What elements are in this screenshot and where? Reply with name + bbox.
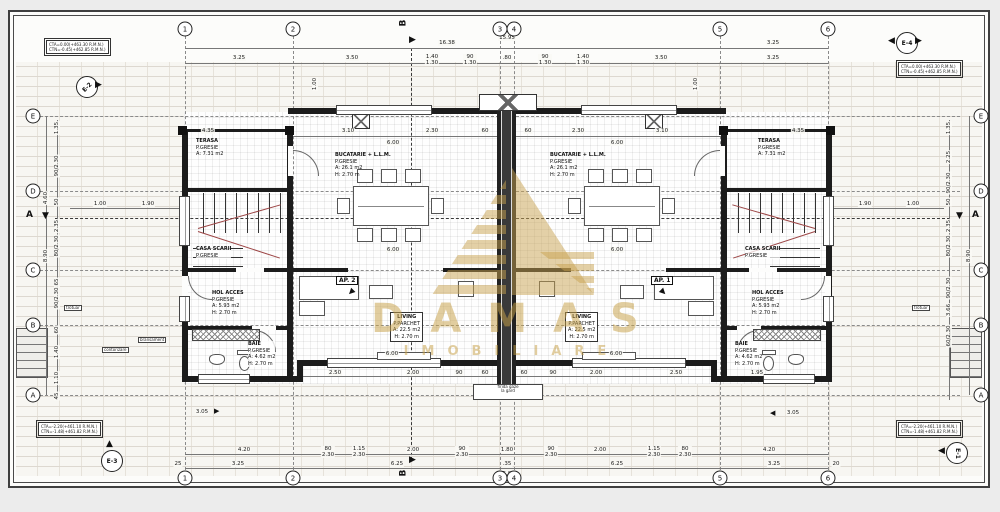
- room-finish: P.GRESIE: [196, 145, 218, 151]
- dimension-label: 60: [520, 370, 529, 376]
- grid-bubble-e-left: E: [26, 109, 41, 124]
- room-area: A: 22.5 m2: [568, 327, 595, 333]
- room-name: BUCATARIE + L.L.M.: [335, 152, 391, 158]
- room-finish: P.GRESIE: [745, 253, 767, 259]
- grid-bubble-2-bottom: 2: [286, 471, 301, 486]
- furniture-chair: [381, 228, 397, 242]
- room-finish: P.GRESIE: [196, 253, 218, 259]
- room-label-terasa-right: TERASA P.GRESIE A: 7.31 m2: [758, 138, 785, 158]
- dimension-label: 50: [946, 198, 952, 207]
- grid-bubble-5-top: 5: [713, 22, 728, 37]
- door-opening: [182, 276, 188, 296]
- room-height: H: 2.70 m: [394, 334, 419, 340]
- grid-bubble-4-bottom: 4: [507, 471, 522, 486]
- room-area: A: 7.31 m2: [758, 151, 785, 157]
- dimension-label: 80 2.30: [678, 446, 692, 458]
- room-name: BUCATARIE + L.L.M.: [550, 152, 606, 158]
- note-line: CTN=-1.48(+461.82 R.M.N.): [901, 429, 958, 434]
- dimension-label: .35: [502, 461, 513, 467]
- grid-bubble-5-bottom: 5: [713, 471, 728, 486]
- grid-bubble-2-top: 2: [286, 22, 301, 37]
- grid-bubble-1-bottom: 1: [178, 471, 193, 486]
- party-wall: [497, 96, 516, 386]
- room-name: TERASA: [758, 138, 780, 144]
- toilet-tank: [762, 350, 776, 355]
- dimension-label: 60: [481, 128, 490, 134]
- wall: [297, 360, 303, 382]
- sink: [788, 354, 804, 365]
- gas-niche-label: firida gaze la gard: [473, 384, 543, 400]
- note-line: CTN=-1.48(+461.82 R.M.N.): [41, 429, 98, 434]
- elevation-marker-label: E-3: [107, 458, 118, 465]
- dimension-label: 2.00: [593, 447, 607, 453]
- dimension-label: 1.90: [141, 201, 155, 207]
- elevation-note-top-right: CTA=0.00(+463.30 R.M.N.) CTN=-0.45(+462.…: [898, 62, 961, 76]
- section-letter-b-top: B: [398, 20, 408, 27]
- room-label-casa-scarii-left: CASA SCARII P.GRESIE: [196, 246, 231, 259]
- dimension-label: 50: [54, 198, 60, 207]
- room-height: H: 2.70 m: [569, 334, 594, 340]
- dimension-label: 60: [54, 326, 60, 335]
- room-name: CASA SCARII: [196, 246, 231, 252]
- apartment-tag-ap1: AP. 1: [651, 276, 673, 285]
- dimension-label: 4.60: [43, 191, 49, 205]
- dimension-label: .80: [502, 55, 513, 61]
- dimension-label: 80 2.30: [321, 446, 335, 458]
- dimension-label: 80/2.30: [54, 234, 60, 257]
- section-letter-b-bottom: B: [398, 470, 408, 477]
- dimension-label: 90/2.30: [54, 154, 60, 177]
- stair-flight: [193, 193, 285, 233]
- furniture-sofa: [299, 301, 325, 316]
- room-name: HOL ACCES: [212, 290, 244, 296]
- room-name: TERASA: [196, 138, 218, 144]
- furniture-chair: [612, 169, 628, 183]
- dimension-label: 1.00: [906, 201, 920, 207]
- room-label-bucatarie-right: BUCATARIE + L.L.M. P.GRESIE A: 26.1 m2 H…: [550, 152, 606, 178]
- grid-bubble-c-left: C: [26, 263, 41, 278]
- sidewalk-label: trotuar: [64, 305, 82, 311]
- wall: [826, 129, 832, 381]
- dimension-line: [516, 136, 721, 137]
- grid-bubble-c-right: C: [974, 263, 989, 278]
- closet-hatch: [753, 329, 821, 341]
- room-height: H: 2.70 m: [550, 172, 575, 178]
- dimension-line: [185, 63, 828, 64]
- room-name: BAIE: [248, 341, 261, 347]
- grid-bubble-d-right: D: [974, 184, 989, 199]
- slope-arrow-icon: ▶: [214, 408, 219, 415]
- wall: [182, 129, 292, 132]
- dimension-label: 2.30: [571, 128, 585, 134]
- dimension-label: 1.00: [312, 77, 318, 91]
- wall: [293, 268, 348, 272]
- dimension-label: 2.35: [54, 219, 60, 233]
- dimension-label: 1.90: [858, 201, 872, 207]
- section-arrow-icon: ▶: [409, 456, 416, 465]
- dimension-label: 1.00: [693, 77, 699, 91]
- dimension-label: 1.80: [500, 447, 514, 453]
- section-arrow-icon: ▶: [409, 36, 416, 45]
- wall: [666, 268, 721, 272]
- dimension-label: 80/2.30: [946, 234, 952, 257]
- column-post: [285, 126, 294, 135]
- slope-label: 3.05: [195, 409, 209, 415]
- room-finish: P.GRESIE: [735, 348, 757, 354]
- dimension-label: 1.40: [54, 345, 60, 359]
- dimension-label: 6.00: [610, 247, 624, 253]
- dimension-label: 4.20: [762, 447, 776, 453]
- stair-flight: [728, 193, 820, 233]
- wall: [711, 360, 717, 382]
- dimension-label: 65: [54, 278, 60, 287]
- dimension-label: 90 2.30: [544, 446, 558, 458]
- elevation-marker-arrow-icon: ◀: [938, 447, 945, 456]
- furniture-dining-table: [353, 186, 429, 226]
- flue-box: [352, 114, 370, 129]
- dimension-label: 25: [174, 461, 183, 467]
- dimension-label: 90/2.30: [946, 276, 952, 299]
- window: [179, 296, 190, 322]
- room-area: A: 5.93 m2: [752, 303, 779, 309]
- dimension-label: 3.10: [341, 128, 355, 134]
- room-label-hol-right: HOL ACCES P.GRESIE A: 5.93 m2 H: 2.70 m: [752, 290, 784, 316]
- room-label-living-right: LIVING P.PARCHET A: 22.5 m2 H: 2.70 m: [565, 312, 598, 342]
- furniture-coffee-table: [369, 285, 393, 299]
- window: [179, 196, 190, 246]
- furniture-chair: [405, 169, 421, 183]
- room-label-casa-scarii-right: CASA SCARII P.GRESIE: [745, 246, 780, 259]
- grid-bubble-6-top: 6: [821, 22, 836, 37]
- dimension-label: 6.00: [610, 140, 624, 146]
- elevation-marker-arrow-icon: ▶: [915, 37, 922, 46]
- elevation-marker-label: E-4: [902, 40, 913, 47]
- wall: [721, 188, 832, 192]
- room-label-baie-right: BAIE P.GRESIE A: 4.62 m2 H: 2.70 m: [735, 341, 762, 367]
- grid-line-2: [293, 36, 294, 470]
- dimension-label: 3.25: [766, 40, 780, 46]
- dimension-label: 1.40 1.30: [425, 54, 439, 66]
- slope-label: 3.05: [786, 410, 800, 416]
- room-label-terasa-left: TERASA P.GRESIE A: 7.31 m2: [196, 138, 223, 158]
- room-height: H: 2.70 m: [335, 172, 360, 178]
- column-post: [178, 126, 187, 135]
- dimension-label: 1.40 1.30: [576, 54, 590, 66]
- furniture-chair: [636, 228, 652, 242]
- room-label-bucatarie-left: BUCATARIE + L.L.M. P.GRESIE A: 26.1 m2 H…: [335, 152, 391, 178]
- grid-bubble-a-left: A: [26, 388, 41, 403]
- dimension-label: 1.00: [93, 201, 107, 207]
- dimension-label: 2.25: [946, 150, 952, 164]
- grid-bubble-6-bottom: 6: [821, 471, 836, 486]
- dimension-label: 6.00: [386, 140, 400, 146]
- service-connection-label: bransament: [138, 337, 166, 343]
- gas-niche-line2: la gard: [501, 388, 515, 393]
- room-name: LIVING: [572, 314, 591, 320]
- room-name: LIVING: [397, 314, 416, 320]
- dimension-label: 90: [549, 370, 558, 376]
- dimension-label: 1.35: [946, 121, 952, 135]
- furniture-coffee-table: [620, 285, 644, 299]
- dimension-label: 90 1.30: [538, 54, 552, 66]
- grid-bubble-d-left: D: [26, 184, 41, 199]
- furniture-chair: [662, 198, 675, 214]
- grid-bubble-3-top: 3: [493, 22, 508, 37]
- wall: [443, 268, 498, 272]
- elevation-marker-e1: E-1: [946, 442, 968, 464]
- furniture-chair: [431, 198, 444, 214]
- dimension-label: 2.00: [406, 370, 420, 376]
- dimension-label: 3.50: [345, 55, 359, 61]
- section-letter-a-right: A: [972, 210, 979, 220]
- elevation-note-bottom-left: CTA=-2.20(+461.10 R.M.N.) CTN=-1.48(+461…: [38, 422, 101, 436]
- sidewalk-label: trotuar: [912, 305, 930, 311]
- room-finish: P.GRESIE: [550, 159, 572, 165]
- furniture-chair: [588, 228, 604, 242]
- section-arrow-icon: ▼: [956, 212, 963, 221]
- room-finish: P.GRESIE: [758, 145, 780, 151]
- dimension-label: 2.00: [406, 447, 420, 453]
- dimension-label: 2.35: [946, 219, 952, 233]
- furniture-chair: [357, 228, 373, 242]
- room-height: H: 2.70 m: [752, 310, 777, 316]
- furniture-dining-table: [584, 186, 660, 226]
- room-area: A: 4.62 m2: [735, 354, 762, 360]
- dimension-label: 1.15 2.30: [647, 446, 661, 458]
- wall: [722, 129, 832, 132]
- wall: [182, 129, 188, 381]
- room-finish: P.PARCHET: [568, 321, 595, 327]
- window: [336, 105, 432, 115]
- section-arrow-icon: ▼: [42, 212, 49, 221]
- furniture-chair: [636, 169, 652, 183]
- toilet: [763, 356, 774, 371]
- elevation-marker-label: E-2: [81, 81, 94, 94]
- room-name: BAIE: [735, 341, 748, 347]
- window: [823, 196, 834, 246]
- room-finish: P.GRESIE: [212, 297, 234, 303]
- elevation-marker-e3: E-3: [101, 450, 123, 472]
- room-height: H: 2.70 m: [735, 361, 760, 367]
- room-area: A: 26.1 m2: [550, 165, 577, 171]
- dimension-label: 6.00: [386, 247, 400, 253]
- dimension-label: 6.25: [610, 461, 624, 467]
- grid-bubble-b-right: B: [974, 318, 989, 333]
- dimension-label: 90/2.30: [54, 286, 60, 309]
- dimension-label: 3.25: [767, 461, 781, 467]
- dimension-label: 6.00: [385, 351, 399, 357]
- room-area: A: 26.1 m2: [335, 165, 362, 171]
- wall: [182, 188, 293, 192]
- grid-bubble-a-right: A: [974, 388, 989, 403]
- dimension-label: 8.90: [966, 249, 972, 263]
- dimension-label: 2.50: [669, 370, 683, 376]
- dimension-label: 3.50: [654, 55, 668, 61]
- window: [763, 374, 815, 384]
- dimension-label: 60: [481, 370, 490, 376]
- elevation-marker-arrow-icon: ▶: [95, 81, 102, 90]
- dimension-line: [832, 208, 944, 209]
- furniture-chair: [337, 198, 350, 214]
- note-line: CTN=-0.45(+462.85 R.M.N.): [49, 47, 106, 52]
- dimension-label: 3.25: [231, 461, 245, 467]
- dimension-label: 6.25: [390, 461, 404, 467]
- dimension-label: 3.25: [766, 55, 780, 61]
- slope-arrow-icon: ◀: [770, 410, 775, 417]
- dimension-label: 90 2.30: [455, 446, 469, 458]
- dimension-label: 4.20: [237, 447, 251, 453]
- flue-box: [645, 114, 663, 129]
- room-area: A: 7.31 m2: [196, 151, 223, 157]
- dimension-line: [185, 48, 828, 49]
- dimension-label: 2.30: [425, 128, 439, 134]
- room-area: A: 4.62 m2: [248, 354, 275, 360]
- section-letter-a-left: A: [26, 210, 33, 220]
- chimney: [479, 94, 537, 111]
- elevation-marker-arrow-icon: ▲: [106, 440, 113, 449]
- dimension-label: 1.10: [54, 371, 60, 385]
- dimension-line: [185, 454, 828, 455]
- exterior-stair: [950, 328, 982, 378]
- furniture-armchair: [539, 281, 555, 297]
- grid-bubble-3-bottom: 3: [493, 471, 508, 486]
- dimension-label: 3.66: [946, 303, 952, 317]
- dimension-label: 3.10: [655, 128, 669, 134]
- wall: [516, 268, 571, 272]
- window: [823, 296, 834, 322]
- elevation-marker-arrow-icon: ◀: [888, 37, 895, 46]
- window: [198, 374, 250, 384]
- room-finish: P.GRESIE: [335, 159, 357, 165]
- closet-hatch: [192, 329, 260, 341]
- dimension-label: 16.38: [438, 40, 456, 46]
- room-area: A: 5.93 m2: [212, 303, 239, 309]
- furniture-armchair: [458, 281, 474, 297]
- dimension-label: 2.50: [328, 370, 342, 376]
- exterior-stair: [16, 328, 48, 378]
- grid-bubble-e-right: E: [974, 109, 989, 124]
- room-finish: P.GRESIE: [248, 348, 270, 354]
- dimension-label: 8.90: [43, 249, 49, 263]
- dimension-label: 60/2.30: [946, 324, 952, 347]
- dimension-label: 20: [832, 461, 841, 467]
- furniture-chair: [405, 228, 421, 242]
- elevation-note-bottom-right: CTA=-2.20(+461.10 R.M.N.) CTN=-1.48(+461…: [898, 422, 961, 436]
- room-name: CASA SCARII: [745, 246, 780, 252]
- floor-plan-sheet: 16.38 15.95 3.25 3.25 3.50 1.40 1.30 90 …: [0, 0, 1000, 512]
- dimension-line: [185, 468, 828, 469]
- dimension-label: 1.15 2.30: [352, 446, 366, 458]
- dimension-label: 4.35: [791, 128, 805, 134]
- room-height: H: 2.70 m: [212, 310, 237, 316]
- note-line: CTN=-0.45(+462.85 R.M.N.): [901, 69, 958, 74]
- dimension-label: 3.25: [232, 55, 246, 61]
- metering-label: contorizare: [102, 347, 129, 353]
- column-post: [719, 126, 728, 135]
- room-height: H: 2.70 m: [248, 361, 273, 367]
- dimension-label: 6.00: [609, 351, 623, 357]
- sink: [209, 354, 225, 365]
- room-label-baie-left: BAIE P.GRESIE A: 4.62 m2 H: 2.70 m: [248, 341, 275, 367]
- dimension-line: [70, 208, 182, 209]
- room-finish: P.PARCHET: [393, 321, 420, 327]
- dimension-label: 1.35: [54, 121, 60, 135]
- room-label-living-left: LIVING P.PARCHET A: 22.5 m2 H: 2.70 m: [390, 312, 423, 342]
- dimension-label: 60: [524, 128, 533, 134]
- room-name: HOL ACCES: [752, 290, 784, 296]
- room-area: A: 22.5 m2: [393, 327, 420, 333]
- grid-bubble-1-top: 1: [178, 22, 193, 37]
- elevation-marker-label: E-1: [953, 448, 960, 459]
- furniture-chair: [612, 228, 628, 242]
- furniture-chair: [568, 198, 581, 214]
- grid-bubble-b-left: B: [26, 318, 41, 333]
- room-label-hol-left: HOL ACCES P.GRESIE A: 5.93 m2 H: 2.70 m: [212, 290, 244, 316]
- dimension-label: 90: [455, 370, 464, 376]
- dimension-label: 45: [54, 392, 60, 401]
- dimension-line: [293, 136, 497, 137]
- dimension-label: 2.00: [589, 370, 603, 376]
- room-finish: P.GRESIE: [752, 297, 774, 303]
- grid-bubble-4-top: 4: [507, 22, 522, 37]
- dimension-label: 1.95: [750, 370, 764, 376]
- apartment-tag-ap2: AP. 2: [336, 276, 358, 285]
- elevation-note-top-left: CTA=0.00(+463.30 R.M.N.) CTN=-0.45(+462.…: [46, 40, 109, 54]
- column-post: [826, 126, 835, 135]
- door-opening: [825, 276, 831, 296]
- dimension-label: 90 1.30: [463, 54, 477, 66]
- dimension-label: 4.35: [201, 128, 215, 134]
- door-opening: [720, 146, 725, 176]
- dimension-label: 90/2.30: [946, 171, 952, 194]
- furniture-sofa: [688, 301, 714, 316]
